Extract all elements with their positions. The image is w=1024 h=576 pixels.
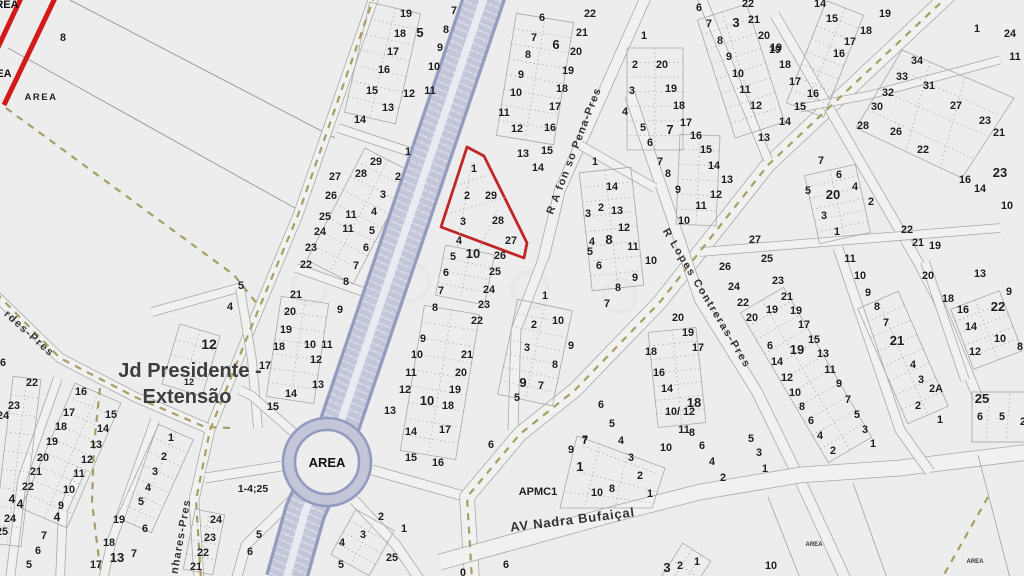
svg-text:18: 18 (273, 341, 285, 353)
svg-text:18: 18 (673, 100, 685, 112)
svg-text:1: 1 (834, 226, 840, 238)
svg-text:13: 13 (90, 439, 102, 451)
svg-text:10: 10 (428, 61, 440, 73)
svg-text:6: 6 (977, 411, 983, 423)
svg-text:20: 20 (922, 270, 934, 282)
svg-text:12: 12 (399, 384, 411, 396)
svg-text:6: 6 (503, 559, 509, 571)
svg-text:25: 25 (319, 211, 331, 223)
svg-text:5: 5 (854, 409, 860, 421)
svg-text:2: 2 (1020, 416, 1024, 428)
svg-text:2: 2 (830, 445, 836, 457)
svg-text:21: 21 (890, 333, 904, 348)
svg-text:11: 11 (739, 84, 750, 96)
svg-text:24: 24 (1004, 28, 1016, 40)
svg-text:3: 3 (524, 342, 530, 354)
svg-text:6: 6 (488, 439, 494, 451)
svg-text:8: 8 (689, 427, 695, 439)
svg-text:5: 5 (238, 280, 244, 292)
svg-text:4: 4 (817, 430, 823, 442)
svg-text:AREA: AREA (0, 68, 12, 80)
svg-text:3: 3 (821, 210, 827, 222)
svg-text:19: 19 (879, 8, 891, 20)
svg-text:5: 5 (609, 418, 615, 430)
svg-text:8: 8 (60, 32, 66, 44)
svg-text:28: 28 (355, 168, 367, 180)
svg-text:4: 4 (618, 435, 624, 447)
svg-text:12: 12 (618, 222, 630, 234)
svg-text:22: 22 (737, 297, 749, 309)
svg-text:13: 13 (817, 348, 829, 360)
svg-text:5: 5 (587, 246, 593, 258)
svg-text:10: 10 (466, 246, 480, 261)
svg-text:6: 6 (808, 415, 814, 427)
svg-text:4: 4 (17, 497, 24, 511)
svg-text:22: 22 (742, 0, 754, 10)
svg-text:26: 26 (890, 126, 902, 138)
svg-text:7: 7 (818, 155, 824, 167)
svg-text:9: 9 (420, 333, 426, 345)
svg-text:15: 15 (267, 401, 279, 413)
svg-text:4: 4 (456, 235, 462, 247)
svg-text:18: 18 (687, 395, 701, 410)
svg-text:9: 9 (337, 304, 343, 316)
svg-text:19: 19 (790, 305, 802, 317)
svg-text:29: 29 (485, 190, 497, 202)
svg-text:10: 10 (411, 349, 423, 361)
svg-text:15: 15 (405, 452, 417, 464)
svg-text:1: 1 (870, 438, 876, 450)
svg-text:17: 17 (680, 117, 692, 129)
svg-text:10: 10 (732, 68, 744, 80)
svg-text:6: 6 (647, 137, 653, 149)
svg-text:10: 10 (1001, 200, 1013, 212)
svg-text:13: 13 (721, 174, 733, 186)
svg-text:5: 5 (138, 496, 144, 508)
svg-text:20: 20 (37, 452, 49, 464)
svg-text:9: 9 (568, 444, 574, 456)
svg-text:7: 7 (353, 260, 359, 272)
svg-text:11: 11 (844, 253, 855, 265)
svg-text:6: 6 (699, 440, 705, 452)
svg-text:9: 9 (836, 378, 842, 390)
svg-text:4: 4 (852, 181, 858, 193)
svg-text:1: 1 (937, 414, 943, 426)
svg-text:20: 20 (758, 30, 770, 42)
svg-text:7: 7 (706, 18, 712, 30)
svg-text:19: 19 (929, 240, 941, 252)
svg-text:27: 27 (329, 171, 341, 183)
svg-text:4: 4 (709, 456, 715, 468)
svg-text:10: 10 (994, 333, 1006, 345)
svg-text:18: 18 (394, 28, 406, 40)
svg-text:23: 23 (979, 115, 991, 127)
svg-text:31: 31 (923, 80, 935, 92)
svg-text:14: 14 (965, 321, 977, 333)
svg-text:8: 8 (552, 359, 558, 371)
svg-text:25: 25 (386, 552, 398, 564)
svg-text:10: 10 (304, 339, 316, 351)
svg-text:3: 3 (585, 208, 591, 220)
svg-text:8: 8 (525, 49, 531, 61)
svg-text:7: 7 (451, 5, 457, 17)
svg-text:22: 22 (991, 299, 1005, 314)
svg-text:5: 5 (514, 392, 520, 404)
svg-text:11: 11 (1009, 51, 1020, 63)
svg-text:17: 17 (844, 36, 856, 48)
svg-text:15: 15 (105, 409, 117, 421)
svg-text:12: 12 (511, 123, 523, 135)
svg-text:10: 10 (660, 442, 672, 454)
svg-text:5: 5 (338, 559, 344, 571)
svg-text:3: 3 (756, 447, 762, 459)
svg-text:12: 12 (710, 189, 722, 201)
svg-text:7: 7 (531, 32, 537, 44)
svg-text:18: 18 (556, 83, 568, 95)
svg-text:23: 23 (478, 299, 490, 311)
svg-text:10: 10 (678, 215, 690, 227)
svg-text:4: 4 (227, 301, 233, 313)
svg-text:24: 24 (728, 281, 740, 293)
svg-text:22: 22 (26, 377, 38, 389)
svg-text:3: 3 (628, 452, 634, 464)
svg-text:22: 22 (197, 547, 209, 559)
svg-text:13: 13 (384, 405, 396, 417)
svg-text:18: 18 (645, 346, 657, 358)
svg-text:2: 2 (637, 470, 643, 482)
svg-text:6: 6 (767, 340, 773, 352)
svg-text:17: 17 (798, 319, 810, 331)
svg-text:30: 30 (871, 101, 883, 113)
svg-text:16: 16 (690, 130, 702, 142)
svg-text:9: 9 (519, 375, 526, 390)
svg-text:18: 18 (942, 293, 954, 305)
svg-text:9: 9 (865, 287, 871, 299)
svg-text:26: 26 (325, 190, 337, 202)
svg-text:3: 3 (380, 189, 386, 201)
svg-text:2: 2 (632, 59, 638, 71)
svg-text:23: 23 (305, 242, 317, 254)
svg-text:17: 17 (789, 76, 801, 88)
svg-text:15: 15 (366, 85, 378, 97)
svg-text:22: 22 (901, 224, 913, 236)
svg-text:20: 20 (746, 312, 758, 324)
svg-text:3: 3 (360, 529, 366, 541)
svg-text:24: 24 (4, 513, 16, 525)
svg-text:24: 24 (483, 284, 495, 296)
svg-text:4: 4 (622, 106, 628, 118)
svg-text:10: 10 (552, 315, 564, 327)
svg-text:8: 8 (443, 24, 449, 36)
svg-text:17: 17 (692, 342, 704, 354)
svg-text:19: 19 (400, 8, 412, 20)
svg-text:19: 19 (766, 304, 778, 316)
svg-text:10: 10 (645, 255, 657, 267)
svg-text:14: 14 (354, 114, 366, 126)
svg-text:14: 14 (606, 181, 618, 193)
svg-text:1: 1 (576, 459, 583, 474)
svg-text:6: 6 (836, 169, 842, 181)
svg-text:6: 6 (247, 546, 253, 558)
svg-text:7: 7 (657, 156, 663, 168)
svg-text:12: 12 (81, 454, 93, 466)
svg-text:2: 2 (677, 560, 683, 572)
svg-text:2: 2 (598, 202, 604, 214)
svg-text:7: 7 (845, 394, 851, 406)
svg-text:11: 11 (321, 339, 332, 351)
svg-text:18: 18 (55, 421, 67, 433)
svg-text:6: 6 (0, 357, 6, 369)
svg-text:4: 4 (910, 359, 916, 371)
svg-text:9: 9 (568, 340, 574, 352)
svg-text:7: 7 (438, 285, 444, 297)
svg-text:11: 11 (498, 107, 509, 119)
svg-text:6: 6 (596, 260, 602, 272)
svg-text:12: 12 (781, 372, 793, 384)
svg-text:9: 9 (518, 69, 524, 81)
svg-text:22: 22 (471, 315, 483, 327)
svg-text:16: 16 (957, 304, 969, 316)
svg-text:11: 11 (424, 85, 435, 97)
svg-text:15: 15 (808, 334, 820, 346)
svg-text:1: 1 (762, 463, 768, 475)
svg-text:24: 24 (210, 514, 222, 526)
svg-text:14: 14 (779, 116, 791, 128)
svg-text:2: 2 (395, 171, 401, 183)
svg-text:9: 9 (675, 184, 681, 196)
svg-text:4: 4 (54, 510, 61, 524)
svg-text:19: 19 (769, 44, 781, 56)
svg-text:16: 16 (833, 48, 845, 60)
svg-text:27: 27 (749, 234, 761, 246)
svg-text:7: 7 (604, 298, 610, 310)
svg-text:1: 1 (592, 156, 598, 168)
svg-text:AREA: AREA (805, 542, 823, 548)
svg-text:APMC1: APMC1 (519, 486, 558, 498)
svg-text:14: 14 (814, 0, 826, 10)
svg-text:5: 5 (416, 25, 423, 40)
svg-text:19: 19 (46, 436, 58, 448)
svg-text:24: 24 (314, 226, 326, 238)
svg-text:8: 8 (615, 282, 621, 294)
svg-text:3: 3 (918, 374, 924, 386)
svg-text:1: 1 (405, 146, 411, 158)
svg-text:19: 19 (280, 324, 292, 336)
svg-text:10: 10 (63, 484, 75, 496)
svg-text:17: 17 (387, 46, 399, 58)
svg-text:24: 24 (0, 410, 9, 422)
svg-text:16: 16 (807, 88, 819, 100)
svg-text:18: 18 (103, 537, 115, 549)
svg-text:13: 13 (758, 132, 770, 144)
svg-text:8: 8 (717, 35, 723, 47)
svg-text:10: 10 (765, 560, 777, 572)
svg-text:11: 11 (405, 367, 416, 379)
svg-text:7: 7 (666, 122, 673, 137)
svg-text:10: 10 (591, 487, 603, 499)
svg-text:4: 4 (9, 492, 16, 506)
svg-text:7: 7 (538, 380, 544, 392)
svg-text:5: 5 (26, 559, 32, 571)
svg-text:12: 12 (969, 346, 981, 358)
svg-text:21: 21 (461, 349, 473, 361)
svg-text:Extensão: Extensão (143, 386, 232, 408)
svg-text:14: 14 (771, 356, 783, 368)
svg-text:19: 19 (562, 65, 574, 77)
svg-text:8: 8 (1017, 341, 1023, 353)
svg-text:3: 3 (629, 85, 635, 97)
svg-text:29: 29 (370, 156, 382, 168)
svg-text:14: 14 (285, 388, 297, 400)
svg-text:12: 12 (184, 377, 194, 387)
svg-text:19: 19 (113, 514, 125, 526)
svg-text:9: 9 (632, 272, 638, 284)
svg-text:14: 14 (974, 183, 986, 195)
svg-text:11: 11 (342, 223, 353, 235)
svg-text:3: 3 (460, 216, 466, 228)
svg-text:23: 23 (772, 275, 784, 287)
svg-text:12: 12 (403, 88, 415, 100)
svg-text:6: 6 (443, 267, 449, 279)
svg-text:21: 21 (993, 127, 1005, 139)
svg-text:26: 26 (719, 261, 731, 273)
svg-text:8: 8 (665, 168, 671, 180)
svg-text:7: 7 (582, 434, 588, 446)
svg-text:4: 4 (339, 537, 345, 549)
svg-text:13: 13 (517, 148, 529, 160)
svg-text:8: 8 (432, 302, 438, 314)
svg-text:21: 21 (190, 561, 202, 573)
svg-text:1-4;25: 1-4;25 (238, 483, 269, 495)
svg-text:5: 5 (450, 251, 456, 263)
svg-text:6: 6 (539, 12, 545, 24)
svg-text:19: 19 (665, 83, 677, 95)
svg-text:2: 2 (915, 400, 921, 412)
svg-text:18: 18 (442, 400, 454, 412)
svg-text:22: 22 (917, 144, 929, 156)
svg-text:34: 34 (911, 55, 923, 67)
svg-text:16: 16 (653, 367, 665, 379)
svg-text:15: 15 (700, 144, 712, 156)
svg-text:10: 10 (789, 387, 801, 399)
svg-text:19: 19 (790, 342, 804, 357)
svg-text:2: 2 (378, 511, 384, 523)
svg-text:19: 19 (682, 327, 694, 339)
svg-text:1: 1 (647, 488, 653, 500)
svg-text:11: 11 (627, 241, 638, 253)
svg-text:5: 5 (805, 185, 811, 197)
svg-text:1: 1 (401, 523, 407, 535)
svg-text:1: 1 (471, 163, 477, 175)
svg-text:10: 10 (854, 270, 866, 282)
svg-text:13: 13 (611, 205, 623, 217)
svg-text:5: 5 (999, 411, 1005, 423)
svg-text:10: 10 (510, 87, 522, 99)
svg-text:6: 6 (552, 37, 559, 52)
svg-text:20: 20 (455, 367, 467, 379)
svg-text:15: 15 (826, 13, 838, 25)
svg-text:1: 1 (542, 290, 548, 302)
svg-text:16: 16 (544, 122, 556, 134)
svg-text:AREA: AREA (25, 92, 58, 103)
svg-text:5: 5 (640, 122, 646, 134)
svg-text:1: 1 (974, 23, 980, 35)
svg-text:2: 2 (161, 451, 167, 463)
svg-text:11: 11 (345, 209, 356, 221)
svg-text:13: 13 (110, 550, 124, 565)
svg-text:20: 20 (826, 187, 840, 202)
svg-text:18: 18 (860, 25, 872, 37)
svg-text:8: 8 (874, 301, 880, 313)
svg-text:16: 16 (959, 174, 971, 186)
svg-text:20: 20 (570, 46, 582, 58)
svg-text:14: 14 (405, 426, 417, 438)
svg-text:2: 2 (720, 472, 726, 484)
svg-text:8: 8 (605, 232, 612, 247)
svg-text:14: 14 (532, 162, 544, 174)
svg-text:22: 22 (300, 259, 312, 271)
svg-text:1: 1 (641, 30, 647, 42)
svg-text:25: 25 (975, 391, 989, 406)
svg-text:16: 16 (75, 386, 87, 398)
svg-text:21: 21 (576, 27, 588, 39)
svg-text:13: 13 (312, 379, 324, 391)
svg-text:14: 14 (708, 160, 720, 172)
svg-text:17: 17 (90, 559, 102, 571)
svg-text:32: 32 (882, 87, 894, 99)
svg-text:23: 23 (8, 400, 20, 412)
svg-text:6: 6 (696, 2, 702, 14)
svg-text:28: 28 (492, 215, 504, 227)
svg-text:25: 25 (761, 253, 773, 265)
svg-text:2A: 2A (929, 383, 943, 395)
svg-text:22: 22 (584, 8, 596, 20)
svg-text:11: 11 (678, 424, 689, 436)
svg-text:28: 28 (857, 120, 869, 132)
svg-text:11: 11 (695, 200, 706, 212)
svg-text:6: 6 (35, 545, 41, 557)
svg-text:8: 8 (343, 276, 349, 288)
svg-text:2: 2 (531, 319, 537, 331)
svg-text:2: 2 (464, 190, 470, 202)
svg-text:9: 9 (437, 42, 443, 54)
svg-text:26: 26 (494, 250, 506, 262)
svg-text:1: 1 (694, 556, 700, 568)
svg-text:6: 6 (598, 399, 604, 411)
svg-text:15: 15 (794, 101, 806, 113)
svg-text:21: 21 (290, 289, 302, 301)
svg-text:20: 20 (284, 306, 296, 318)
svg-text:17: 17 (63, 407, 75, 419)
svg-text:3: 3 (862, 424, 868, 436)
svg-text:7: 7 (883, 317, 889, 329)
svg-text:8: 8 (609, 483, 615, 495)
svg-text:AREA: AREA (0, 0, 19, 11)
svg-text:0: 0 (460, 567, 466, 576)
svg-text:14: 14 (661, 383, 673, 395)
svg-text:13: 13 (382, 102, 394, 114)
svg-text:21: 21 (781, 291, 793, 303)
svg-text:7: 7 (41, 530, 47, 542)
svg-text:15: 15 (541, 145, 553, 157)
svg-text:19: 19 (449, 384, 461, 396)
svg-text:27: 27 (950, 100, 962, 112)
svg-text:5: 5 (369, 225, 375, 237)
svg-text:1: 1 (168, 432, 174, 444)
svg-text:22: 22 (22, 481, 34, 493)
svg-text:4: 4 (371, 206, 377, 218)
svg-text:12: 12 (750, 100, 762, 112)
